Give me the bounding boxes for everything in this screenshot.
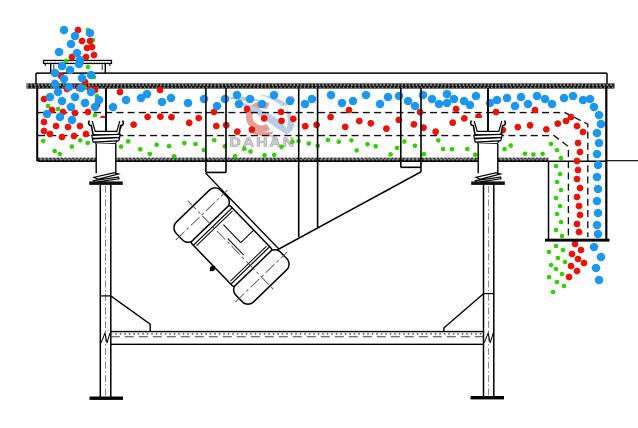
svg-text:DAHAN: DAHAN — [230, 136, 297, 150]
